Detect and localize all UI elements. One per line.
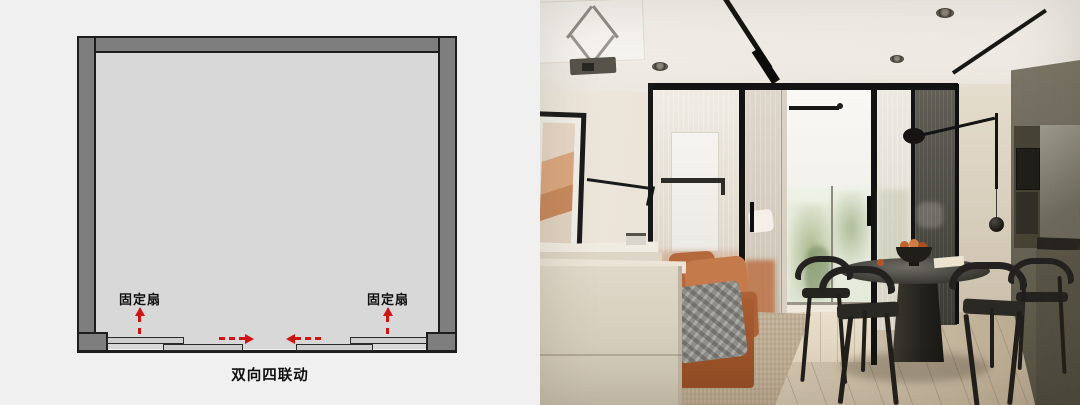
arrow-up-dash — [386, 316, 389, 334]
table-pedestal — [892, 276, 944, 362]
sliding-door-diagram: 固定扇 固定扇 双向四联动 — [0, 0, 540, 405]
foreground-cabinet — [540, 266, 682, 405]
fixed-panel-label-left: 固定扇 — [112, 289, 168, 308]
spotlight-icon — [652, 62, 668, 71]
built-in-oven — [1016, 192, 1038, 234]
bowl-foot — [909, 262, 919, 266]
wall-right — [438, 36, 457, 334]
kitchen-backsplash — [1040, 125, 1080, 245]
arrow-left-dash — [295, 337, 321, 340]
projector-ceiling-panel — [540, 0, 645, 64]
built-in-microwave — [1016, 148, 1040, 190]
wall-bottom-line — [77, 350, 457, 353]
bedroom-wall-lamp — [661, 178, 725, 183]
pendant-ball-icon — [989, 217, 1004, 232]
screenshot-canvas: 固定扇 固定扇 双向四联动 — [0, 0, 1080, 405]
roller-blind — [787, 90, 873, 189]
pendant-wire — [996, 189, 997, 217]
pillow-through-glass — [917, 202, 943, 228]
projector-lens — [582, 63, 594, 71]
cabinet-seam — [540, 354, 682, 356]
arrow-up-dash — [138, 316, 141, 334]
arrow-up-icon — [135, 307, 145, 316]
door-panel-fixed-left — [107, 337, 184, 344]
arrow-left-icon — [286, 334, 295, 344]
dining-chair — [949, 262, 1027, 290]
kitchen-counter — [1037, 237, 1080, 250]
bedroom-wall-lamp-head — [721, 183, 725, 195]
track-spot-icon — [837, 103, 843, 109]
ledge-items — [626, 233, 646, 245]
arrow-right-dash — [219, 337, 245, 340]
door-panel-sliding-right — [296, 344, 373, 351]
chair-leg — [990, 308, 994, 368]
disc-lamp-icon — [903, 128, 925, 144]
balcony-track-light — [789, 106, 839, 110]
wall-top — [93, 36, 441, 53]
tree-greenery — [831, 192, 871, 264]
door-panel-fixed-right — [350, 337, 427, 344]
fruit — [877, 259, 884, 266]
wall-art-frame — [540, 111, 586, 253]
arrow-up-icon — [383, 307, 393, 316]
dining-chair — [819, 266, 895, 294]
diagram-caption: 双向四联动 — [0, 364, 540, 385]
spotlight-icon — [890, 55, 904, 63]
rod-pendant-lamp — [995, 113, 998, 189]
corner-block-right — [426, 332, 457, 352]
arrow-right-icon — [245, 334, 254, 344]
door-panel-sliding-left — [163, 344, 243, 351]
fixed-panel-label-right: 固定扇 — [360, 289, 416, 308]
wall-left — [77, 36, 96, 334]
bedroom-curtain — [671, 132, 719, 252]
spotlight-icon — [936, 8, 954, 18]
corner-block-left — [77, 332, 108, 352]
abstract-art — [540, 122, 575, 243]
partition-header-frame — [648, 83, 958, 90]
door-handle — [750, 202, 754, 232]
interior-photo — [540, 0, 1080, 405]
